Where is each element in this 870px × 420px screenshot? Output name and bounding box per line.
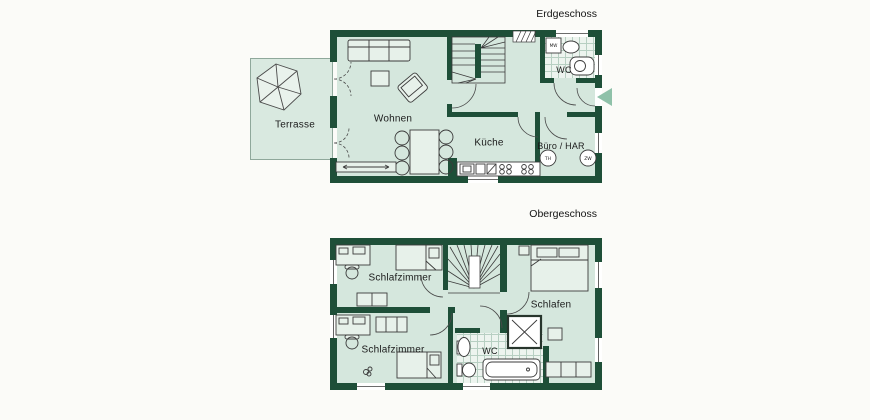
- room-label-schlafzimmer-bottom: Schlafzimmer: [362, 345, 425, 356]
- pillow: [559, 248, 579, 257]
- room-label-terrasse: Terrasse: [275, 120, 315, 131]
- dresser: [548, 328, 562, 340]
- terrace-tree-icon: [257, 64, 301, 110]
- pillow: [430, 355, 439, 365]
- floorplan-page: { "colors": { "wall": "#1e4f38", "floor"…: [0, 0, 870, 420]
- room-label-schlafzimmer-top: Schlafzimmer: [369, 273, 432, 284]
- pillow: [537, 248, 557, 257]
- schlafen-furniture: [519, 245, 591, 377]
- wc-upper-fixtures: [457, 316, 541, 380]
- sideboard: [336, 162, 396, 172]
- sink: [458, 338, 470, 357]
- room-label-wc-ground: WC: [556, 65, 571, 75]
- ground-floor-title: Erdgeschoss: [536, 8, 597, 20]
- washing-machine-label: MW: [550, 43, 558, 48]
- zw-symbol-label: ZW: [584, 156, 592, 162]
- room-label-wohnen: Wohnen: [374, 114, 412, 125]
- upper-floor-drawing: [0, 200, 870, 420]
- staircase-upper: [448, 245, 500, 293]
- staircase: [452, 37, 505, 83]
- pillow: [429, 248, 439, 258]
- room-label-schlafen: Schlafen: [531, 300, 572, 311]
- wardrobe: [546, 362, 591, 377]
- bathtub: [570, 57, 594, 75]
- plant-icon: [364, 367, 373, 376]
- room-label-wc-upper: WC: [482, 346, 497, 356]
- chimney-hatch: [513, 31, 536, 42]
- coffee-table: [371, 71, 389, 86]
- room-label-kueche: Küche: [474, 138, 503, 149]
- sink: [563, 41, 579, 53]
- armchair: [397, 72, 429, 104]
- nightstand: [519, 246, 529, 255]
- room-label-buero-har: Büro / HAR: [537, 141, 585, 151]
- dining-table-and-chairs: [395, 130, 453, 175]
- sofa: [348, 40, 410, 61]
- dresser: [376, 317, 407, 332]
- ground-floor-drawing: MW TH ZW: [0, 0, 870, 200]
- upper-floor-title: Obergeschoss: [529, 208, 597, 220]
- toilet: [463, 363, 476, 377]
- th-symbol-label: TH: [544, 156, 551, 162]
- kitchen-counter: [457, 162, 540, 176]
